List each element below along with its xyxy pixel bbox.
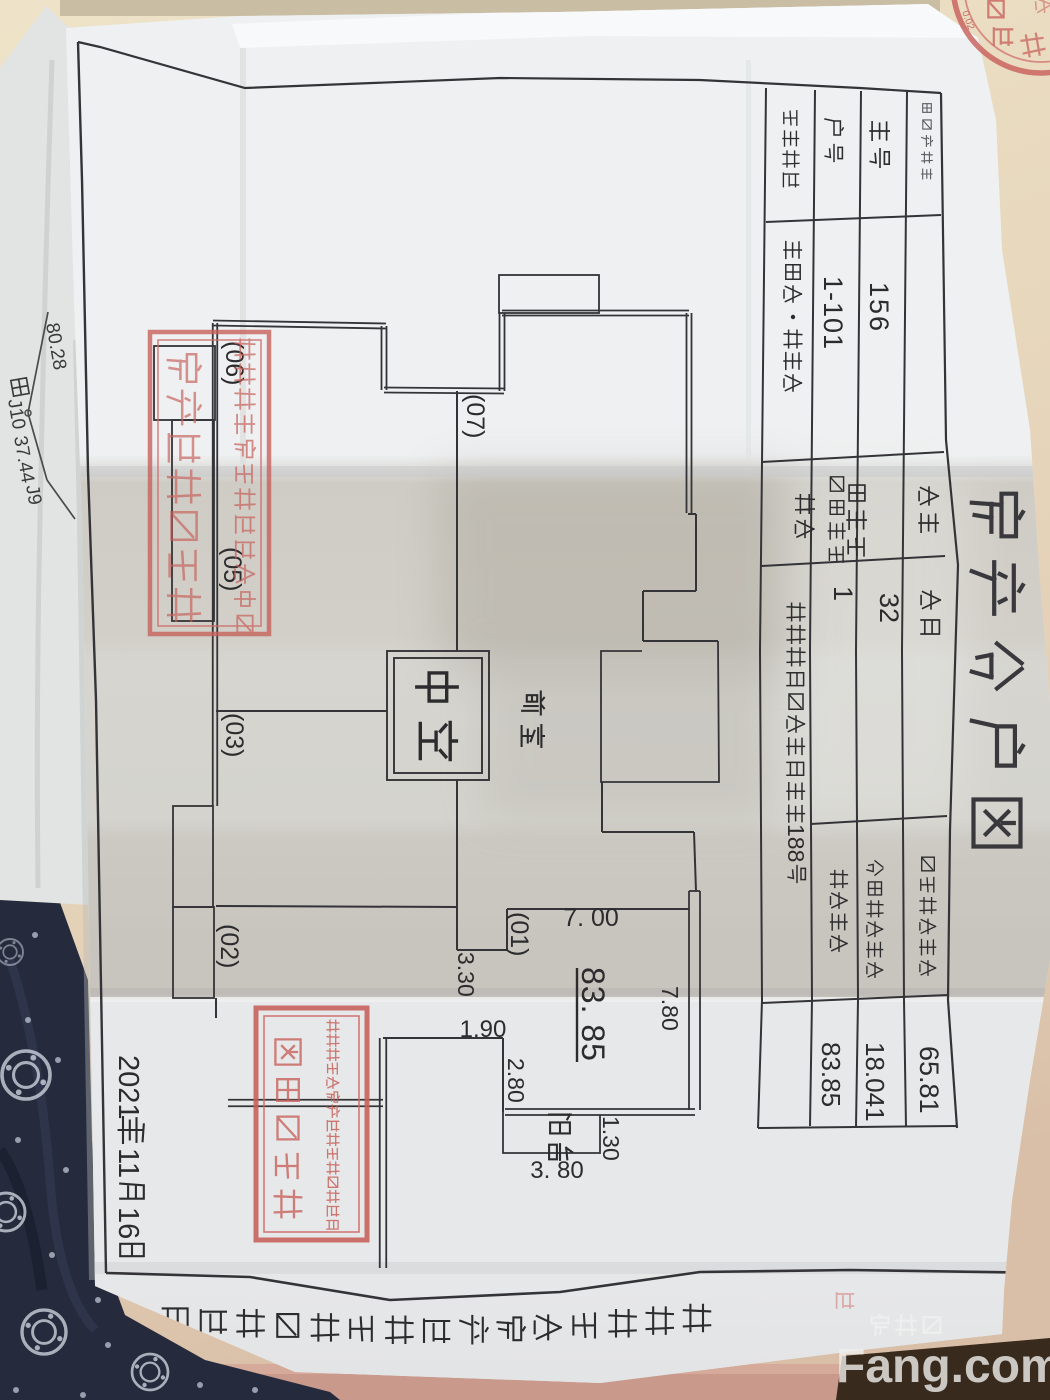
svg-text:188: 188 <box>783 824 809 862</box>
svg-text:11: 11 <box>112 1148 144 1178</box>
svg-text:2.80: 2.80 <box>503 1058 529 1103</box>
svg-text:18.041: 18.041 <box>860 1042 890 1122</box>
svg-text:3. 80: 3. 80 <box>530 1157 583 1184</box>
svg-text:J9: J9 <box>21 483 45 506</box>
svg-text:(05): (05) <box>218 547 246 591</box>
svg-text:65.81: 65.81 <box>914 1046 944 1114</box>
svg-text:(02): (02) <box>215 924 243 968</box>
svg-text:83.85: 83.85 <box>816 1042 846 1107</box>
svg-text:3.30: 3.30 <box>453 952 479 997</box>
svg-text:1.90: 1.90 <box>460 1016 507 1043</box>
svg-text:(06): (06) <box>220 341 248 385</box>
svg-text:(03): (03) <box>220 713 248 757</box>
svg-text:(07): (07) <box>461 394 489 438</box>
svg-text:32: 32 <box>874 593 904 623</box>
svg-text:1.30: 1.30 <box>598 1116 624 1161</box>
svg-text:83. 85: 83. 85 <box>575 967 611 1062</box>
svg-text:1: 1 <box>828 586 858 601</box>
svg-text:16: 16 <box>112 1207 144 1239</box>
svg-text:156: 156 <box>864 282 894 333</box>
svg-text:Fang.com: Fang.com <box>836 1340 1050 1393</box>
svg-text:7.80: 7.80 <box>657 986 683 1031</box>
svg-text:7. 00: 7. 00 <box>563 904 619 932</box>
svg-text:(01): (01) <box>505 912 533 956</box>
svg-text:1-101: 1-101 <box>818 276 848 350</box>
svg-text:2021: 2021 <box>112 1055 144 1120</box>
